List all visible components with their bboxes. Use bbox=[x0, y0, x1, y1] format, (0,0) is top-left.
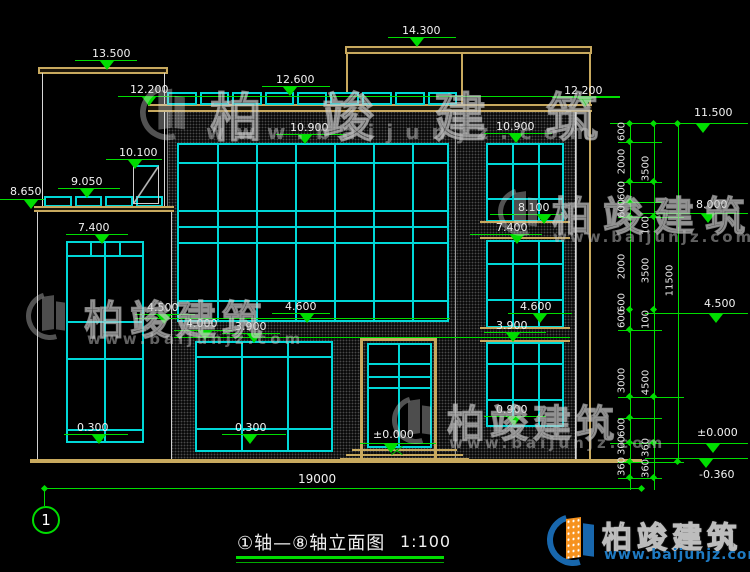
right-tower-window-middle bbox=[486, 240, 564, 328]
level-label: 4.600 bbox=[520, 300, 552, 313]
level-label: 4.500 bbox=[704, 297, 736, 310]
dim-value: 600 bbox=[617, 297, 628, 341]
axis-bubble-1: 1 bbox=[32, 506, 60, 534]
level-triangle-icon bbox=[100, 61, 114, 70]
entrance-step bbox=[346, 454, 463, 456]
lower-center-window bbox=[195, 341, 333, 452]
bottom-dim-line bbox=[44, 488, 642, 489]
dim-chain-line bbox=[678, 124, 679, 462]
level-triangle-icon bbox=[709, 314, 723, 323]
level-marker-line bbox=[645, 313, 748, 314]
level-triangle-icon bbox=[24, 200, 38, 209]
roof-slab-main-14300 bbox=[345, 46, 592, 54]
level-triangle-icon bbox=[243, 435, 257, 444]
level-label: -0.360 bbox=[699, 468, 734, 481]
level-triangle-icon bbox=[699, 459, 713, 468]
elevation-drawing-canvas: 13.500 12.200 12.600 14.300 12.200 10.90… bbox=[0, 0, 750, 572]
level-label: 14.300 bbox=[402, 24, 441, 37]
level-triangle-icon bbox=[696, 124, 710, 133]
roof-box-10100 bbox=[133, 165, 159, 204]
level-label: 4.600 bbox=[285, 300, 317, 313]
watermark-url: www.baijunjz.com bbox=[553, 228, 750, 246]
dim-tick bbox=[674, 120, 681, 127]
level-triangle-icon bbox=[533, 314, 547, 323]
level-triangle-icon bbox=[410, 38, 424, 47]
left-terrace-slab bbox=[34, 206, 174, 212]
axis-leader-line bbox=[44, 488, 45, 506]
level-label: 11.500 bbox=[694, 106, 733, 119]
level-label: 7.400 bbox=[78, 221, 110, 234]
dim-value: 100 bbox=[641, 298, 652, 342]
title-underline bbox=[236, 556, 444, 559]
level-label: 13.500 bbox=[92, 47, 131, 60]
dim-value: 4500 bbox=[641, 361, 652, 405]
dim-value: 3500 bbox=[641, 249, 652, 293]
level-label: 10.100 bbox=[119, 146, 158, 159]
dim-value: 360 bbox=[641, 447, 652, 491]
level-triangle-icon bbox=[128, 160, 142, 169]
level-label: 0.300 bbox=[235, 421, 267, 434]
logo-url-text: www.baijunjz.com bbox=[604, 547, 750, 563]
watermark-url: www.baijunjz.com bbox=[87, 330, 304, 348]
watermark-url: www.baijunjz.com bbox=[206, 120, 602, 144]
watermark-url: www.baijunjz.com bbox=[449, 434, 666, 452]
drawing-title: ①轴—⑧轴立面图 bbox=[237, 529, 385, 555]
level-triangle-icon bbox=[95, 235, 109, 244]
level-triangle-icon bbox=[92, 435, 106, 444]
ground-line bbox=[30, 459, 642, 463]
level-label: 3.900 bbox=[496, 319, 528, 332]
dim-value: 11500 bbox=[665, 259, 676, 303]
level-marker-line bbox=[645, 458, 748, 459]
level-label: 0.300 bbox=[77, 421, 109, 434]
level-marker-line bbox=[360, 443, 436, 444]
drawing-scale: 1:100 bbox=[400, 532, 451, 551]
level-triangle-icon bbox=[506, 333, 520, 342]
level-label: ±0.000 bbox=[697, 426, 738, 439]
level-triangle-icon bbox=[80, 189, 94, 198]
title-underline-thin bbox=[236, 562, 444, 563]
level-triangle-icon bbox=[300, 314, 314, 323]
bottom-dim-value: 19000 bbox=[298, 472, 336, 486]
logo-building-icon bbox=[566, 517, 581, 559]
level-label: 8.650 bbox=[10, 185, 42, 198]
logo-building-icon bbox=[583, 523, 594, 557]
left-tower-wall-line bbox=[42, 73, 43, 208]
dim-tick bbox=[674, 458, 681, 465]
entrance-step bbox=[352, 449, 457, 451]
level-label: 9.050 bbox=[71, 175, 103, 188]
level-triangle-icon bbox=[706, 444, 720, 453]
level-triangle-icon bbox=[384, 444, 398, 453]
